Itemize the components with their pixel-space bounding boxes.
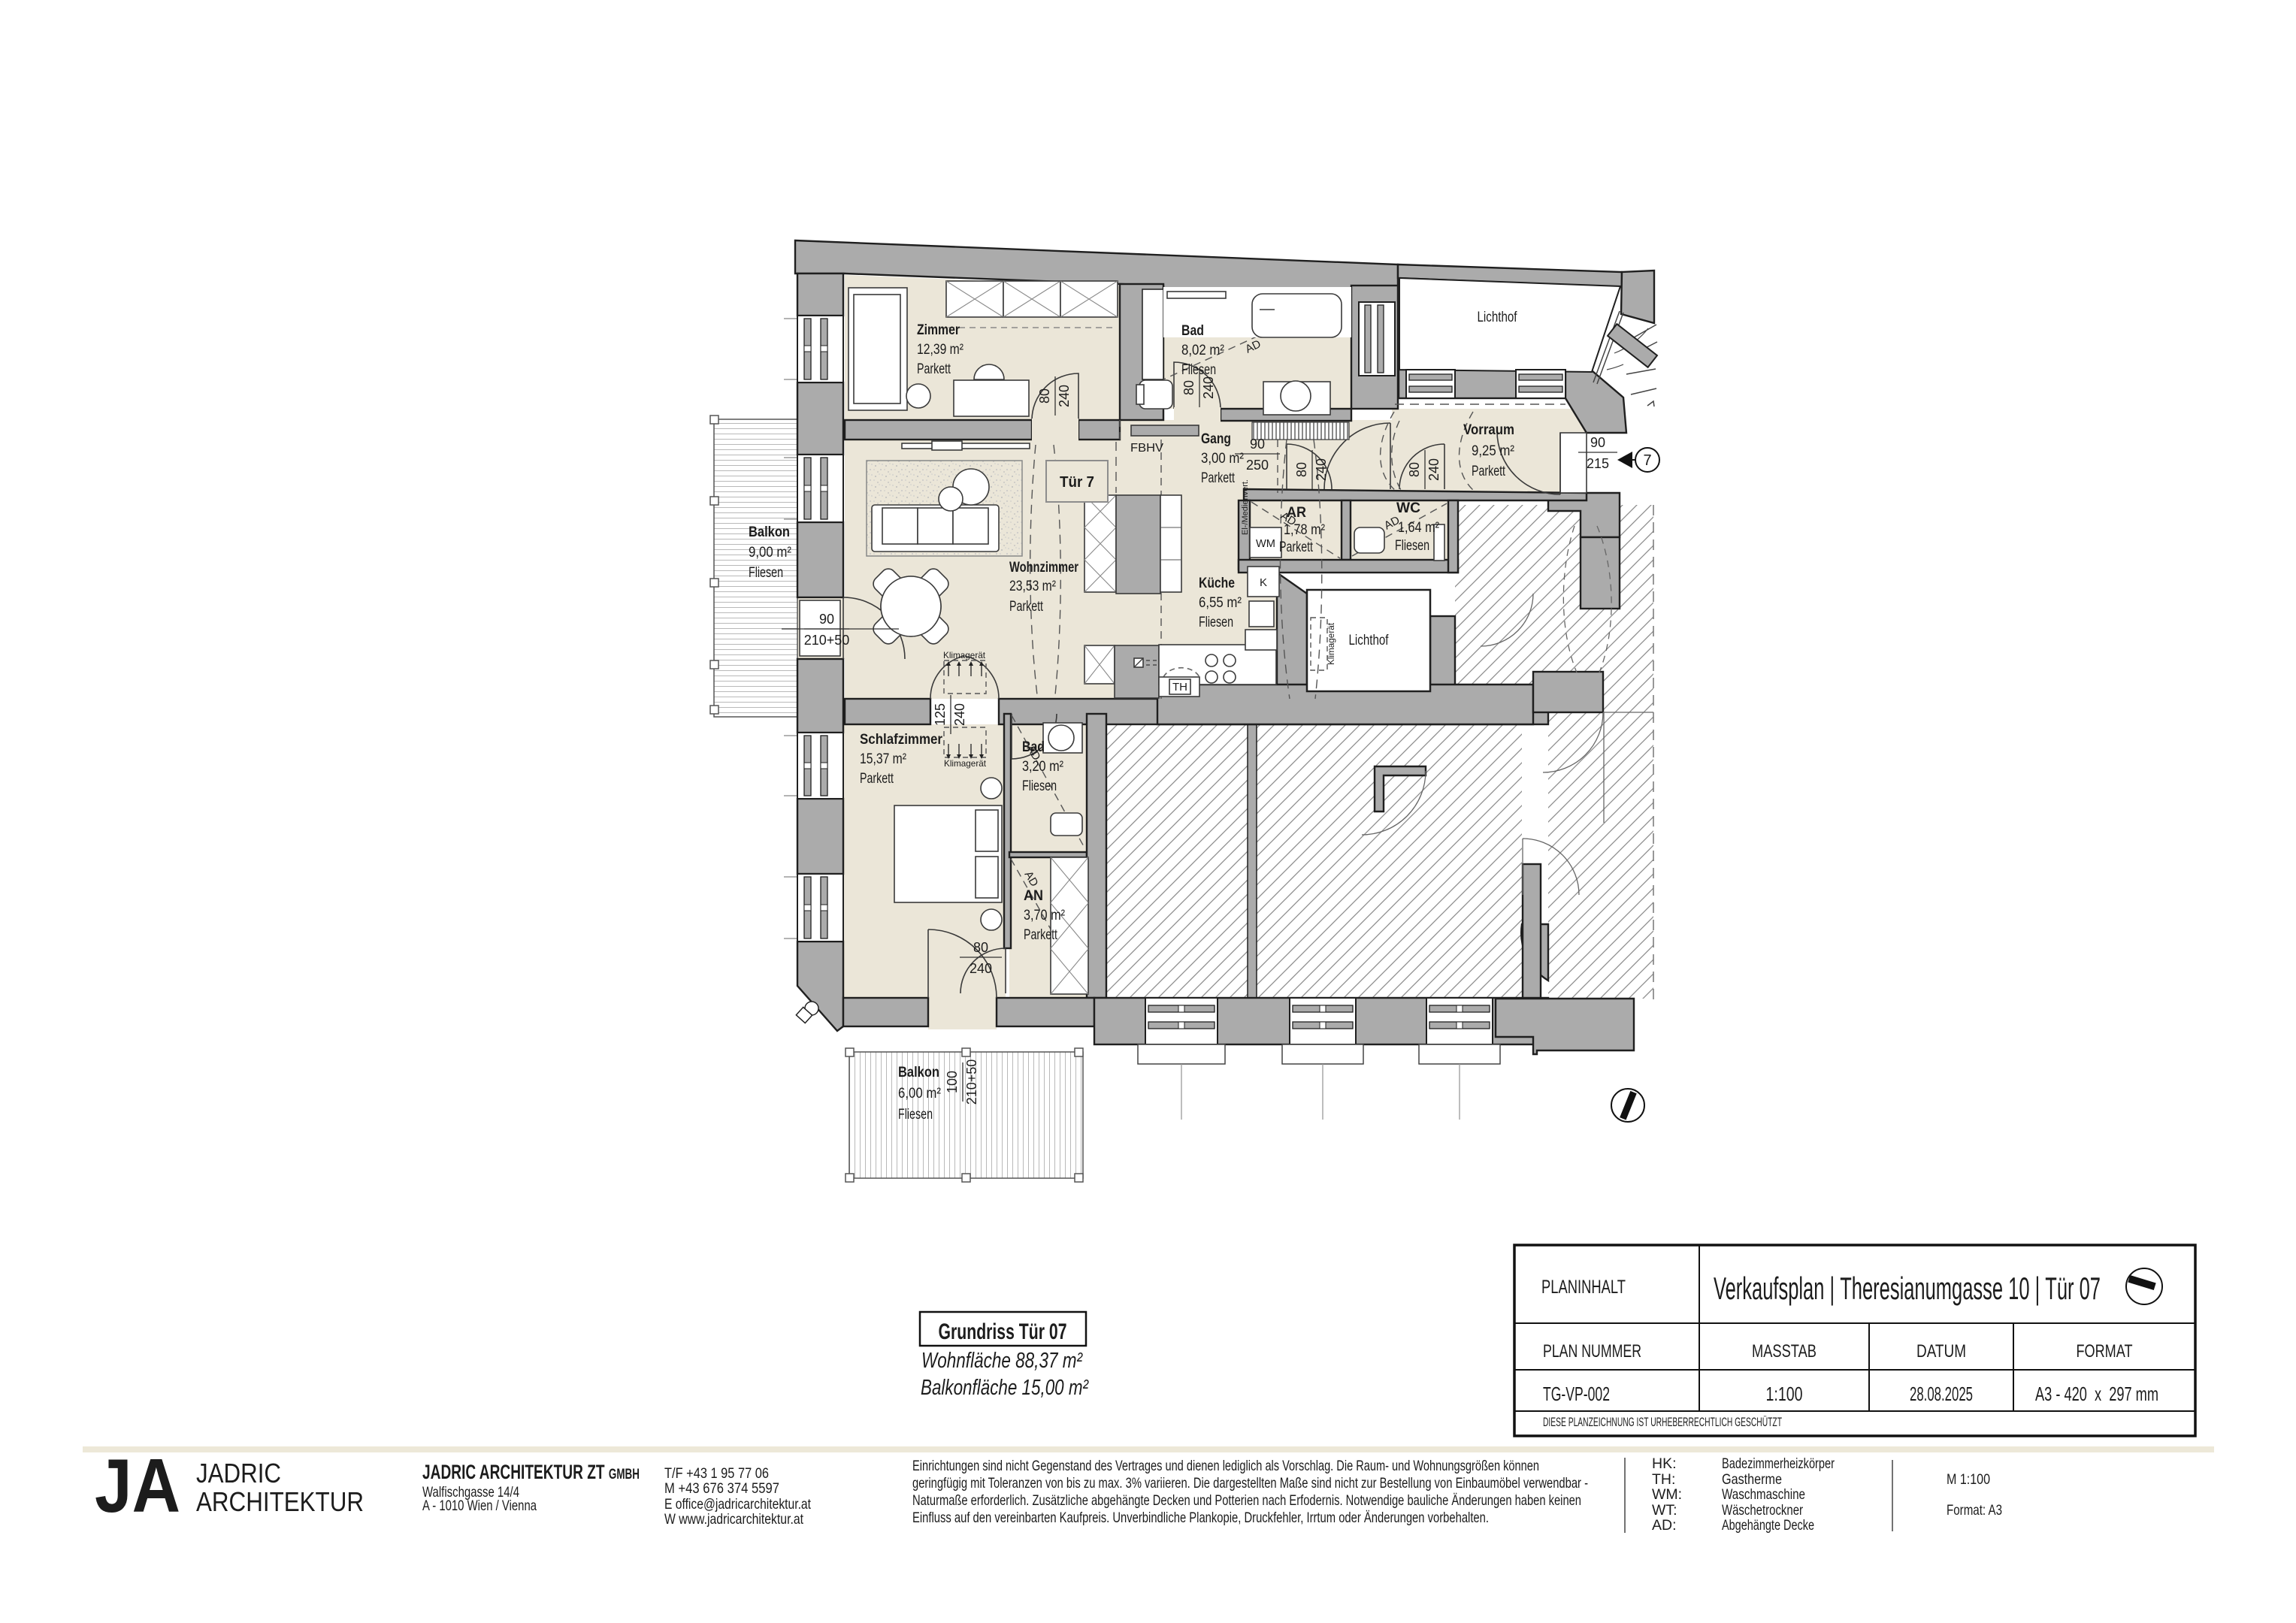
svg-text:Lichthof: Lichthof (1349, 633, 1390, 648)
svg-text:T/F +43 1 95 77 06: T/F +43 1 95 77 06 (664, 1465, 769, 1482)
svg-text:TH: TH (1172, 681, 1187, 694)
svg-text:240: 240 (1426, 458, 1441, 481)
svg-text:DATUM: DATUM (1916, 1341, 1966, 1362)
svg-text:Bad: Bad (1181, 323, 1204, 339)
svg-text:Einrichtungen sind nicht Gegen: Einrichtungen sind nicht Gegenstand des … (912, 1458, 1539, 1474)
svg-text:Fliesen: Fliesen (1181, 362, 1216, 378)
svg-text:90: 90 (1590, 435, 1605, 450)
svg-text:JADRIC: JADRIC (196, 1458, 281, 1489)
svg-text:80: 80 (1181, 380, 1196, 395)
svg-text:AN: AN (1024, 888, 1043, 904)
svg-text:210+50: 210+50 (804, 633, 850, 648)
svg-text:90: 90 (1250, 437, 1265, 452)
svg-text:Balkon: Balkon (898, 1065, 939, 1080)
svg-text:MASSTAB: MASSTAB (1752, 1341, 1817, 1362)
svg-text:Waschmaschine: Waschmaschine (1722, 1486, 1805, 1503)
svg-text:Fliesen: Fliesen (1199, 615, 1233, 630)
svg-text:ARCHITEKTUR: ARCHITEKTUR (196, 1486, 364, 1517)
svg-text:80: 80 (1407, 462, 1422, 477)
svg-text:100: 100 (945, 1071, 960, 1093)
svg-text:7: 7 (1643, 452, 1651, 469)
svg-text:125: 125 (933, 703, 948, 726)
svg-text:1,64 m²: 1,64 m² (1398, 520, 1439, 536)
svg-text:6,55 m²: 6,55 m² (1199, 595, 1242, 611)
svg-text:Parkett: Parkett (1024, 927, 1058, 943)
svg-text:Fliesen: Fliesen (1395, 538, 1429, 554)
svg-text:Gastherme: Gastherme (1722, 1471, 1782, 1488)
svg-text:Lichthof: Lichthof (1478, 310, 1518, 325)
svg-text:80: 80 (1037, 388, 1052, 403)
svg-text:9,00 m²: 9,00 m² (749, 545, 791, 561)
svg-text:M 1:100: M 1:100 (1947, 1471, 1990, 1488)
svg-text:Grundriss Tür 07: Grundriss Tür 07 (939, 1319, 1067, 1344)
svg-text:Abgehängte Decke: Abgehängte Decke (1722, 1517, 1814, 1534)
svg-text:240: 240 (1201, 376, 1216, 399)
svg-text:K: K (1260, 576, 1267, 589)
svg-text:Wäschetrockner: Wäschetrockner (1722, 1502, 1803, 1519)
svg-text:AD:: AD: (1652, 1517, 1677, 1534)
svg-text:PLANINHALT: PLANINHALT (1541, 1277, 1626, 1298)
svg-text:PLAN NUMMER: PLAN NUMMER (1543, 1341, 1641, 1362)
svg-text:3,20 m²: 3,20 m² (1022, 759, 1063, 775)
svg-text:TH:: TH: (1652, 1471, 1675, 1488)
svg-text:Parkett: Parkett (1472, 464, 1506, 479)
svg-text:80: 80 (973, 940, 988, 955)
svg-text:Einfluss auf den vereinbarten: Einfluss auf den vereinbarten Kaufpreis.… (912, 1510, 1489, 1526)
svg-text:9,25 m²: 9,25 m² (1472, 443, 1514, 459)
svg-text:Naturmaße erforderlich. Zusätz: Naturmaße erforderlich. Zusätzliche abge… (912, 1492, 1581, 1509)
svg-text:JA: JA (95, 1444, 180, 1528)
svg-text:Schlafzimmer: Schlafzimmer (860, 732, 943, 748)
svg-text:Fliesen: Fliesen (898, 1107, 933, 1123)
svg-text:FBHV: FBHV (1130, 442, 1163, 455)
svg-text:Format: A3: Format: A3 (1947, 1502, 2002, 1519)
svg-text:3,00 m²: 3,00 m² (1201, 451, 1244, 467)
svg-text:Parkett: Parkett (917, 361, 951, 377)
svg-text:Wohnzimmer: Wohnzimmer (1009, 560, 1078, 576)
svg-text:geringfügig mit Toleranzen von: geringfügig mit Toleranzen von bis zu ma… (912, 1475, 1588, 1492)
svg-text:WM:: WM: (1652, 1486, 1682, 1503)
svg-text:Parkett: Parkett (1009, 599, 1044, 615)
svg-text:El-/Medienvert.: El-/Medienvert. (1241, 479, 1250, 535)
svg-text:WM: WM (1256, 537, 1275, 550)
svg-text:210+50: 210+50 (964, 1059, 979, 1105)
svg-text:12,39 m²: 12,39 m² (917, 342, 963, 358)
svg-text:Balkonfläche 15,00 m²: Balkonfläche 15,00 m² (921, 1376, 1089, 1400)
svg-text:Zimmer: Zimmer (917, 322, 960, 338)
svg-text:250: 250 (1246, 458, 1269, 473)
svg-text:215: 215 (1587, 456, 1609, 471)
svg-text:Balkon: Balkon (749, 524, 790, 540)
svg-text:HK:: HK: (1652, 1455, 1677, 1472)
svg-text:Tür 7: Tür 7 (1060, 474, 1094, 491)
svg-text:Küche: Küche (1199, 576, 1235, 591)
svg-text:Klimagerät: Klimagerät (1326, 622, 1336, 665)
svg-text:240: 240 (970, 961, 992, 976)
svg-text:Vorraum: Vorraum (1463, 422, 1514, 438)
svg-text:Parkett: Parkett (1201, 470, 1236, 486)
svg-text:90: 90 (819, 612, 834, 627)
svg-text:Fliesen: Fliesen (749, 565, 783, 581)
svg-text:WC: WC (1396, 500, 1420, 516)
svg-text:1:100: 1:100 (1766, 1383, 1803, 1405)
svg-text:3,70 m²: 3,70 m² (1024, 908, 1065, 923)
svg-text:Parkett: Parkett (860, 771, 894, 787)
svg-text:240: 240 (952, 703, 967, 726)
svg-text:FORMAT: FORMAT (2077, 1341, 2133, 1362)
svg-text:A3 - 420 x 297 mm: A3 - 420 x 297 mm (2035, 1383, 2158, 1405)
svg-text:Gang: Gang (1201, 431, 1231, 447)
svg-text:23,53 m²: 23,53 m² (1009, 579, 1056, 594)
svg-text:240: 240 (1057, 385, 1072, 407)
svg-text:240: 240 (1314, 458, 1329, 481)
svg-text:M +43 676 374 5597: M +43 676 374 5597 (664, 1480, 779, 1497)
svg-text:TG-VP-002: TG-VP-002 (1543, 1383, 1610, 1405)
svg-text:80: 80 (1294, 462, 1309, 477)
svg-text:8,02 m²: 8,02 m² (1181, 343, 1224, 358)
svg-text:28.08.2025: 28.08.2025 (1910, 1383, 1973, 1405)
svg-text:WT:: WT: (1652, 1502, 1677, 1519)
svg-text:Klimagerät: Klimagerät (944, 758, 987, 769)
svg-text:Wohnfläche 88,37 m²: Wohnfläche 88,37 m² (921, 1349, 1083, 1373)
svg-text:15,37 m²: 15,37 m² (860, 751, 906, 767)
svg-text:E office@jadricarchitektur.at: E office@jadricarchitektur.at (664, 1496, 811, 1513)
svg-text:Fliesen: Fliesen (1022, 778, 1057, 794)
svg-text:Parkett: Parkett (1279, 539, 1314, 555)
svg-text:Badezimmerheizkörper: Badezimmerheizkörper (1722, 1455, 1835, 1472)
svg-text:Verkaufsplan | Theresianumgass: Verkaufsplan | Theresianumgasse 10 | Tür… (1714, 1271, 2101, 1306)
svg-text:W www.jadricarchitektur.at: W www.jadricarchitektur.at (664, 1511, 803, 1528)
svg-text:Klimagerät: Klimagerät (943, 650, 986, 660)
svg-text:JADRIC ARCHITEKTUR ZT GMBH: JADRIC ARCHITEKTUR ZT GMBH (422, 1461, 640, 1483)
svg-text:A - 1010 Wien / Vienna: A - 1010 Wien / Vienna (422, 1498, 537, 1514)
svg-text:6,00 m²: 6,00 m² (898, 1086, 941, 1102)
svg-text:DIESE PLANZEICHNUNG IST URHEBE: DIESE PLANZEICHNUNG IST URHEBERRECHTLICH… (1543, 1415, 1782, 1429)
